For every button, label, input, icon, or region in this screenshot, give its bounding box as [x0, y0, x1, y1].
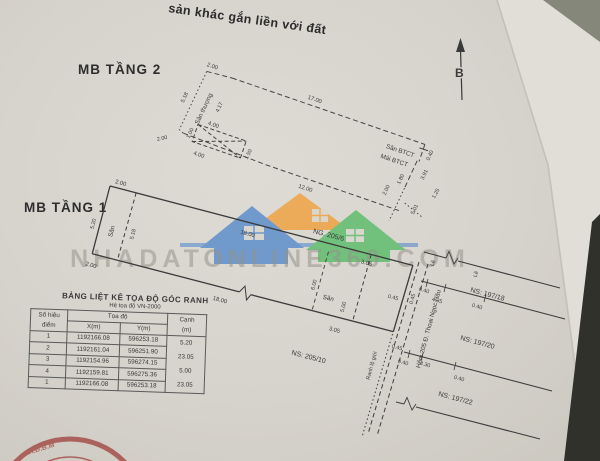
le-label-2: Lề	[473, 271, 480, 278]
coordinates-table: Số hiệu điểm Tọa độ Cạnh (m) X(m) Y(m) 1…	[28, 308, 208, 394]
scanned-survey-document: { "doc": { "top_line": "sản khác gắn liề…	[0, 0, 600, 461]
red-stamp: H.Đ.B.M	[0, 439, 146, 461]
dim-3-91: 3.91	[420, 169, 430, 181]
cell-edges: 5.20 23.05 5.00 23.05	[165, 335, 206, 393]
neighbor-ns205-10: NS: 205/10	[291, 350, 327, 366]
cell-point: 1	[28, 376, 65, 389]
dim-5-20: 5.20	[90, 218, 98, 230]
edge-value: 23.05	[166, 382, 204, 389]
survey-drawing: NHADATONLINE360.COM sản khác gắn liền vớ…	[0, 0, 600, 461]
cell-y: 596253.18	[118, 379, 165, 392]
neighbor-ns197-22: NS: 197/22	[438, 391, 474, 407]
north-arrow-head	[456, 38, 465, 52]
dim-2-00: 2.00	[382, 184, 392, 196]
north-arrow: B	[455, 38, 465, 100]
san2-label: Sân	[322, 294, 335, 304]
dim-5-00: 5.00	[340, 301, 348, 313]
dim-12m: 12.00	[297, 184, 313, 194]
dim-5-18: 5.18	[129, 228, 137, 240]
col-header-edge-1: Cạnh	[179, 316, 194, 324]
neighbor-ns197-18: NS: 197/18	[470, 287, 506, 303]
col-header-point: Số hiệu điểm	[30, 309, 68, 332]
neighbor-ns197-20: NS: 197/20	[460, 335, 496, 351]
dim-1-25: 1.25	[431, 188, 441, 200]
cell-x: 1192166.08	[65, 377, 118, 390]
dim-1-80: 1.80	[396, 173, 406, 185]
dim-m9: 0.45	[387, 294, 399, 303]
floor2-title: MB TẦNG 2	[78, 62, 161, 77]
hem-labels: Lề Lề 0.40 0.45 4.35 0.40 0.45 NS: 197/1…	[366, 260, 506, 407]
dim-6-00: 6.00	[310, 279, 318, 291]
dim-m8: 0.40	[453, 375, 465, 384]
dim-0-40: 0.40	[425, 150, 435, 162]
dim-m1: 0.40	[418, 287, 430, 296]
dim-4m-top: 4.00	[207, 121, 220, 130]
edge-value: 5.20	[167, 340, 205, 347]
col-header-edge: Cạnh (m)	[167, 313, 207, 336]
dim-2m-top: 2.00	[206, 62, 219, 71]
dim-m6: 0.40	[397, 359, 409, 368]
dim-m4: 0.40	[471, 303, 483, 312]
san-label: Sân	[107, 225, 117, 238]
dim-17m: 17.00	[307, 95, 323, 105]
dim-4m-bottom: 4.00	[192, 151, 205, 160]
dim-2m-bottom: 2.00	[157, 135, 168, 143]
edge-value: 5.00	[166, 368, 204, 375]
neighbor-line-3	[404, 352, 552, 391]
edge-value: 23.05	[167, 354, 205, 361]
col-header-edge-2: (m)	[182, 326, 192, 333]
paper-edges	[497, 0, 600, 461]
watermark-text: NHADATONLINE360.COM	[70, 245, 470, 273]
ranh-lo-gioi-label: Ranh lộ giới	[366, 351, 379, 381]
dim-2m-top: 2.00	[114, 179, 126, 188]
neighbor-line-4-break	[404, 398, 416, 411]
floor1-title: MB TẦNG 1	[24, 200, 107, 215]
north-label: B	[455, 66, 464, 80]
document-top-text: sản khác gắn liền với đất	[168, 0, 328, 37]
floor2-top-edge	[232, 78, 425, 144]
dim-1-5m: 1.50	[244, 149, 254, 161]
floor2-right-dotted	[389, 187, 405, 222]
dim-5-18: 5.18	[180, 92, 190, 104]
dim-3-05-bottom: 3.05	[328, 326, 340, 335]
neighbor-line-4	[396, 402, 540, 439]
coordinate-table: BẢNG LIỆT KÊ TỌA ĐỘ GÓC RANH Hệ tọa độ V…	[25, 290, 243, 395]
dim-5-01: 5.01	[410, 204, 420, 216]
terrace-label: Sân thượng	[194, 92, 215, 126]
dim-4-17: 4.17	[215, 101, 225, 113]
stamp-inner-ring	[12, 457, 128, 461]
floor2-terrace-top	[207, 70, 232, 80]
